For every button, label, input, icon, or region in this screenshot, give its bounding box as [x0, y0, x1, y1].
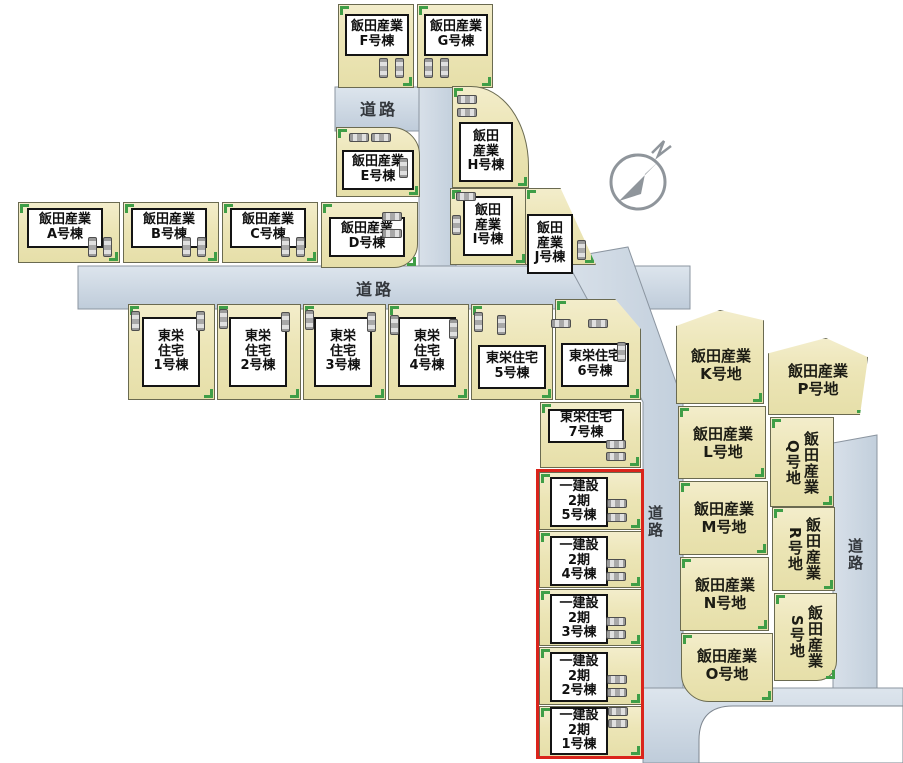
car-icon	[449, 319, 458, 339]
building-label-toei-7: 東栄住宅 7号棟	[548, 409, 624, 443]
car-icon	[182, 237, 191, 257]
land-label-iida-o: 飯田産業 O号地	[683, 645, 771, 685]
highlight-outline-hajime-lots	[536, 469, 644, 759]
road-label-right-vertical: 道路	[845, 538, 866, 572]
land-label-iida-l: 飯田産業 L号地	[680, 423, 766, 463]
car-icon	[281, 312, 290, 332]
car-icon	[367, 312, 376, 332]
car-icon	[588, 319, 608, 328]
land-label-iida-r: 飯田産業 R号地	[778, 509, 830, 589]
building-label-toei-2: 東栄 住宅 2号棟	[229, 317, 287, 387]
car-icon	[196, 311, 205, 331]
building-label-iida-c: 飯田産業 C号棟	[230, 208, 306, 248]
building-label-iida-f: 飯田産業 F号棟	[345, 14, 409, 56]
car-icon	[296, 237, 305, 257]
building-label-iida-b: 飯田産業 B号棟	[131, 208, 207, 248]
land-label-iida-s: 飯田産業 S号地	[780, 596, 832, 678]
car-icon	[395, 58, 404, 78]
road-label-top: 道路	[360, 96, 398, 120]
car-icon	[349, 133, 369, 142]
car-icon	[281, 237, 290, 257]
building-label-toei-1: 東栄 住宅 1号棟	[142, 317, 200, 387]
car-icon	[577, 240, 586, 260]
car-icon	[390, 315, 399, 335]
car-icon	[457, 108, 477, 117]
car-icon	[371, 133, 391, 142]
car-icon	[424, 58, 433, 78]
car-icon	[551, 319, 571, 328]
building-label-iida-g: 飯田産業 G号棟	[424, 14, 488, 56]
building-label-iida-j: 飯田 産業 J号棟	[527, 214, 573, 274]
car-icon	[457, 95, 477, 104]
car-icon	[103, 237, 112, 257]
site-plan: 飯田産業 F号棟 飯田産業 G号棟 飯田産業 E号棟 飯田 産業 H号棟 飯田産…	[0, 0, 903, 763]
car-icon	[456, 192, 476, 201]
building-label-toei-5: 東栄住宅 5号棟	[478, 345, 546, 389]
land-label-iida-k: 飯田産業 K号地	[678, 345, 764, 385]
building-label-iida-i: 飯田 産業 I号棟	[463, 196, 513, 256]
car-icon	[606, 452, 626, 461]
land-label-iida-q: 飯田産業 Q号地	[776, 420, 828, 506]
car-icon	[617, 342, 626, 362]
road-label-center-vertical: 道路	[645, 505, 666, 539]
car-icon	[379, 58, 388, 78]
car-icon	[497, 315, 506, 335]
car-icon	[305, 310, 314, 330]
car-icon	[382, 229, 402, 238]
car-icon	[606, 440, 626, 449]
car-icon	[197, 237, 206, 257]
car-icon	[399, 158, 408, 178]
land-label-iida-n: 飯田産業 N号地	[682, 574, 768, 614]
car-icon	[88, 237, 97, 257]
car-icon	[440, 58, 449, 78]
car-icon	[382, 212, 402, 221]
road-label-middle: 道路	[356, 276, 394, 300]
car-icon	[452, 215, 461, 235]
building-label-toei-3: 東栄 住宅 3号棟	[314, 317, 372, 387]
land-label-iida-p: 飯田産業 P号地	[772, 360, 864, 400]
building-label-iida-h: 飯田 産業 H号棟	[459, 122, 513, 182]
building-label-toei-4: 東栄 住宅 4号棟	[398, 317, 456, 387]
car-icon	[474, 312, 483, 332]
land-label-iida-m: 飯田産業 M号地	[681, 498, 767, 538]
car-icon	[131, 311, 140, 331]
road-corner-cutout	[699, 706, 903, 763]
car-icon	[219, 309, 228, 329]
compass-icon	[611, 141, 671, 209]
